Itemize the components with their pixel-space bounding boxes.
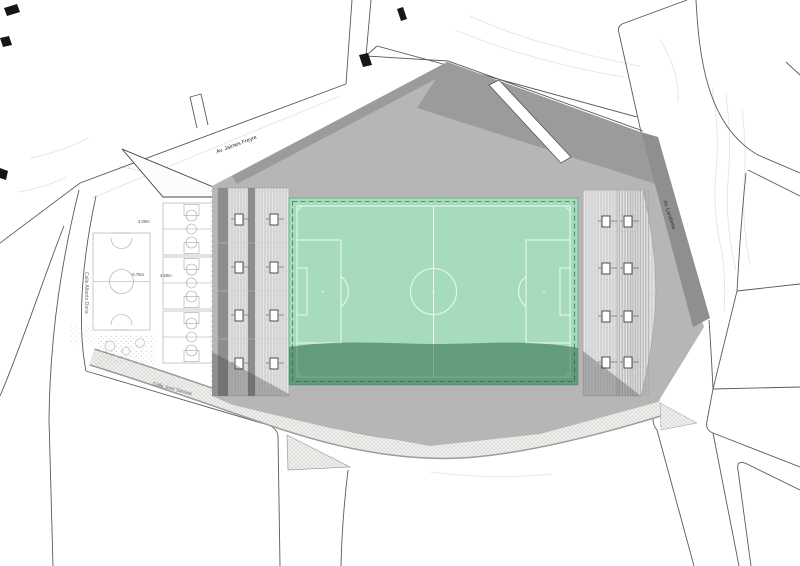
- dim-futsal-level: -0.75m: [131, 272, 145, 277]
- field-roof-shadow: [289, 342, 578, 385]
- site-plan-svg: Av. Jaimes Freyre Av. Landaeta Calle Alb…: [0, 0, 800, 566]
- dim-courts-level: 4.50m: [160, 273, 172, 278]
- label-calle-alberto-doria: Calle Alberto Doria: [83, 272, 89, 314]
- soccer-field: [289, 198, 578, 385]
- dim-courts-top: 4.00m: [138, 219, 150, 224]
- site-plan: Av. Jaimes Freyre Av. Landaeta Calle Alb…: [0, 0, 800, 566]
- west-stand-dark-strip-2: [248, 188, 255, 396]
